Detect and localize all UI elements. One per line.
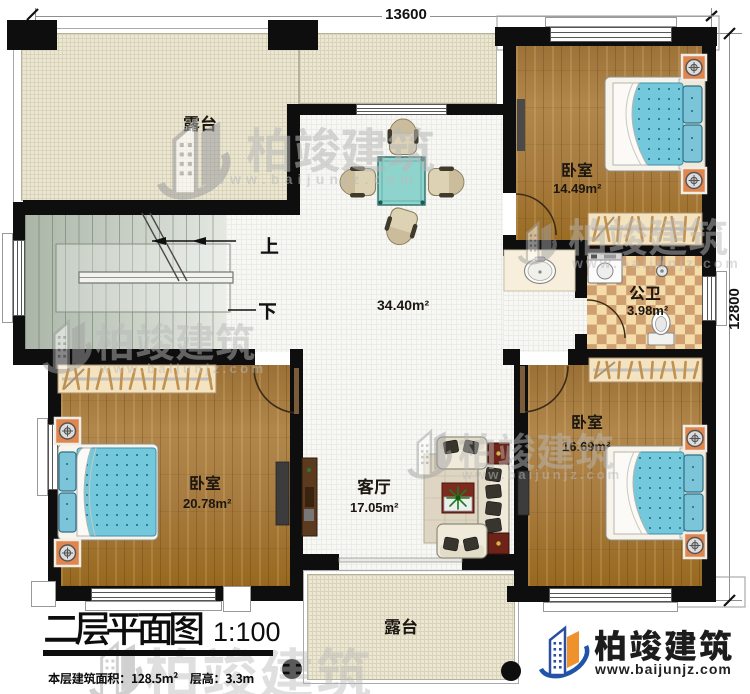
svg-text:www.baijunjz.com: www.baijunjz.com xyxy=(594,661,732,677)
